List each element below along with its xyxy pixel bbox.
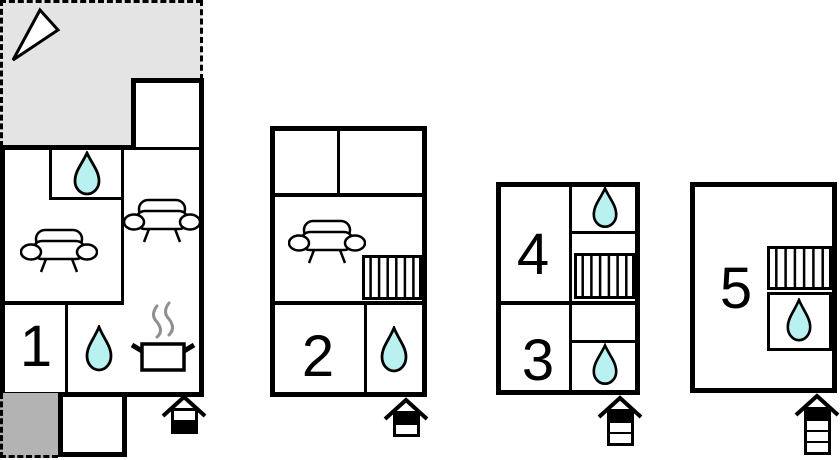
stairs-icon [362,255,422,300]
unit-4-label: 4 [510,226,556,284]
entrance-floor-indicator [171,408,198,434]
small-terrace [0,393,58,458]
terrace-edge [200,0,203,80]
entrance-icon [794,392,840,460]
wall [0,145,136,150]
floor-band-black [610,412,631,421]
entrance-icon [597,394,643,460]
wall [569,187,572,390]
unit-1-label: 1 [13,318,59,376]
floor-band-black [807,410,828,419]
stairs-icon [767,246,832,290]
wall [501,301,635,305]
water-drop-icon [379,326,409,376]
unit-1-upper-room [131,78,204,150]
floor-band-white [610,432,631,443]
north-arrow-icon [8,6,66,64]
wall [364,305,367,392]
floor-band-white [396,423,417,434]
floor-band-white [807,430,828,441]
water-drop-icon [72,151,102,199]
floor-plan: 1 2 [0,0,840,460]
stove-icon [130,300,196,374]
entrance-icon [383,396,429,460]
stairs-icon [574,253,635,299]
water-drop-icon [785,298,813,345]
entrance-icon [161,393,207,460]
entrance-floor-indicator [607,409,634,446]
wall [275,193,422,197]
unit-3-label: 3 [515,332,561,390]
floor-band-white [807,419,828,430]
wall [65,305,68,392]
sofa-icon [123,197,201,245]
wall [49,150,52,200]
wall [275,301,422,305]
floor-band-black [396,414,417,423]
floor-band-white [174,411,195,420]
sofa-icon [288,218,366,266]
water-drop-icon [591,343,619,389]
unit-2-label: 2 [295,328,341,386]
entrance-floor-indicator [393,411,420,437]
floor-band-white [610,421,631,432]
floor-band-black [174,420,195,431]
water-drop-icon [84,325,114,375]
sofa-icon [20,227,98,275]
wall [337,131,340,195]
entrance-floor-indicator [804,407,831,455]
unit-1-annex-room [58,392,127,457]
floor-band-white [807,441,828,452]
unit-5-label: 5 [713,260,759,318]
water-drop-icon [591,186,619,232]
